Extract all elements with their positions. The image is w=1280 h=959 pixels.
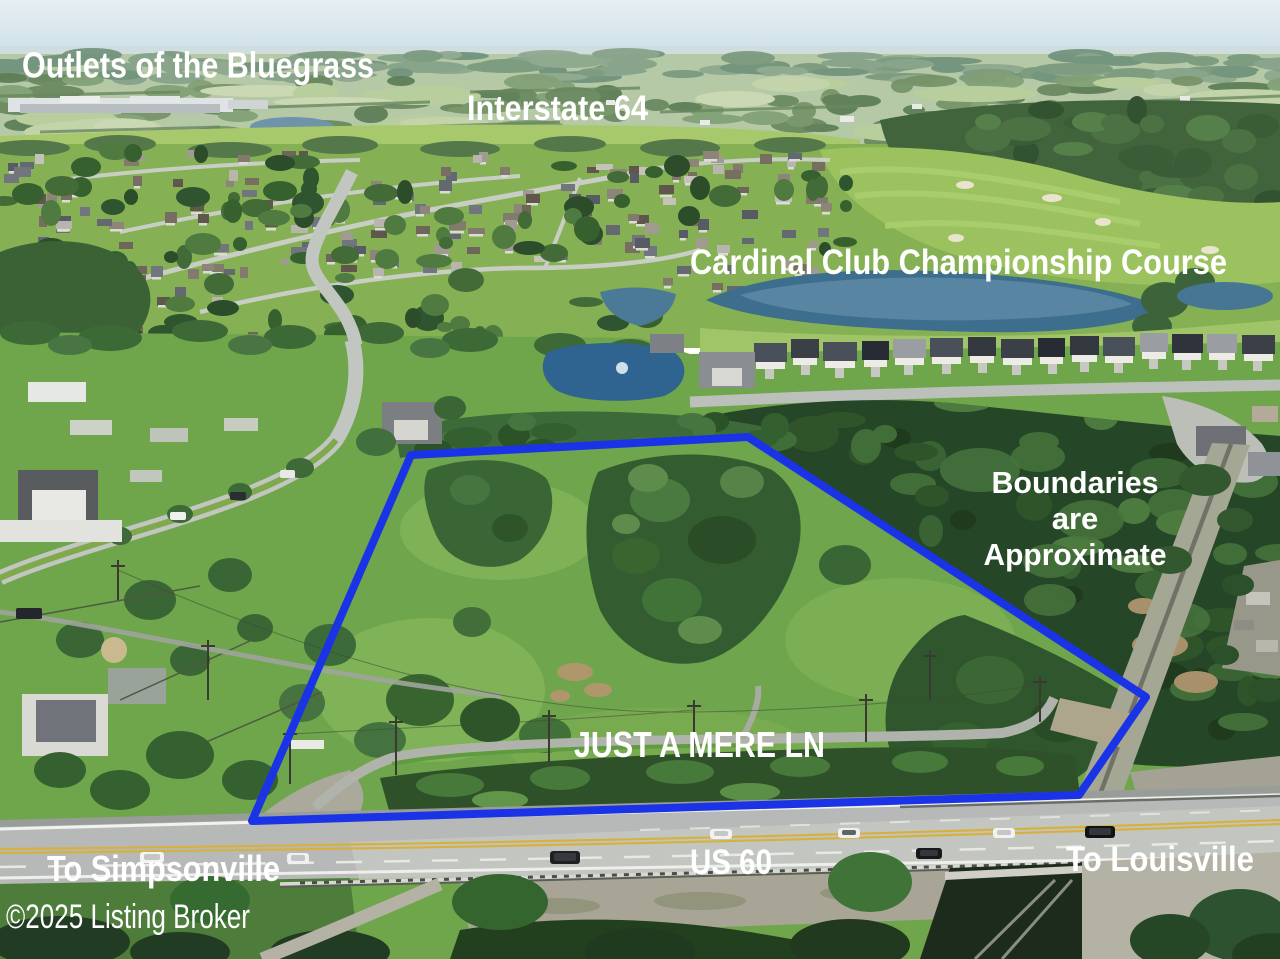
svg-text:JUST A MERE LN: JUST A MERE LN <box>574 724 825 765</box>
svg-text:To Simpsonville: To Simpsonville <box>47 848 280 889</box>
svg-text:Approximate: Approximate <box>984 537 1167 572</box>
svg-text:Outlets of the Bluegrass: Outlets of the Bluegrass <box>22 45 374 86</box>
svg-text:Interstate 64: Interstate 64 <box>467 89 648 128</box>
svg-text:Boundaries: Boundaries <box>992 465 1159 500</box>
svg-text:©2025 Listing Broker: ©2025 Listing Broker <box>6 898 250 936</box>
svg-text:Cardinal Club Championship Cou: Cardinal Club Championship Course <box>690 243 1227 282</box>
svg-text:US 60: US 60 <box>690 843 772 882</box>
svg-text:To Louisville: To Louisville <box>1066 840 1254 879</box>
svg-text:are: are <box>1052 501 1099 536</box>
